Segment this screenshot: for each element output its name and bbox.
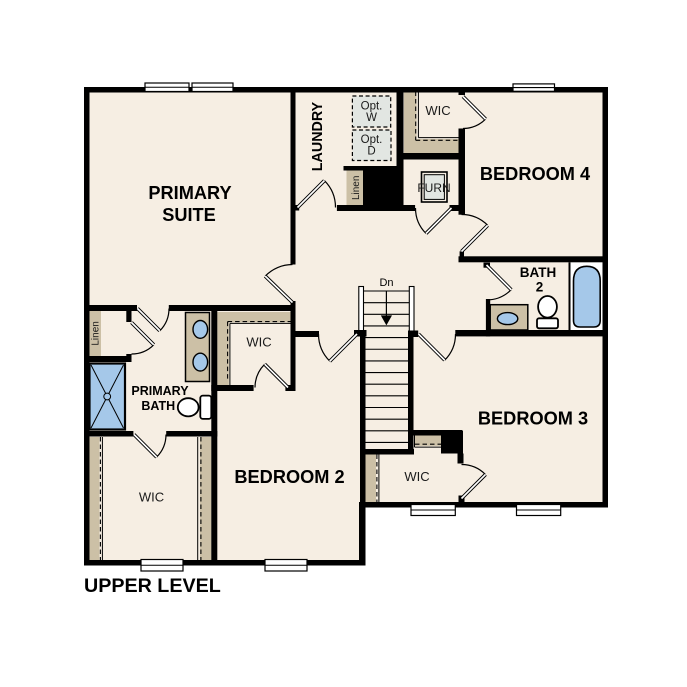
svg-text:WIC: WIC [425, 103, 450, 118]
svg-text:Linen: Linen [90, 321, 101, 345]
svg-text:UPPER LEVEL: UPPER LEVEL [84, 575, 221, 597]
svg-text:2: 2 [536, 280, 544, 295]
svg-text:WIC: WIC [404, 469, 429, 484]
svg-text:BATH: BATH [141, 399, 175, 413]
svg-text:BATH: BATH [520, 265, 557, 280]
svg-text:FURN: FURN [417, 181, 450, 195]
svg-text:BEDROOM 4: BEDROOM 4 [480, 164, 591, 184]
svg-text:D: D [367, 146, 375, 158]
svg-text:BEDROOM 2: BEDROOM 2 [234, 467, 344, 487]
svg-text:Dn: Dn [379, 277, 393, 289]
svg-text:PRIMARY: PRIMARY [148, 183, 231, 203]
svg-text:BEDROOM 3: BEDROOM 3 [478, 409, 588, 429]
svg-text:Opt.: Opt. [361, 134, 383, 146]
svg-text:Linen: Linen [351, 176, 362, 200]
svg-text:Opt.: Opt. [361, 101, 383, 113]
svg-text:PRIMARY: PRIMARY [131, 384, 189, 398]
svg-text:W: W [366, 112, 377, 124]
svg-text:SUITE: SUITE [162, 205, 216, 225]
svg-text:WIC: WIC [139, 489, 164, 504]
svg-text:WIC: WIC [246, 334, 271, 349]
svg-text:LAUNDRY: LAUNDRY [310, 101, 326, 171]
